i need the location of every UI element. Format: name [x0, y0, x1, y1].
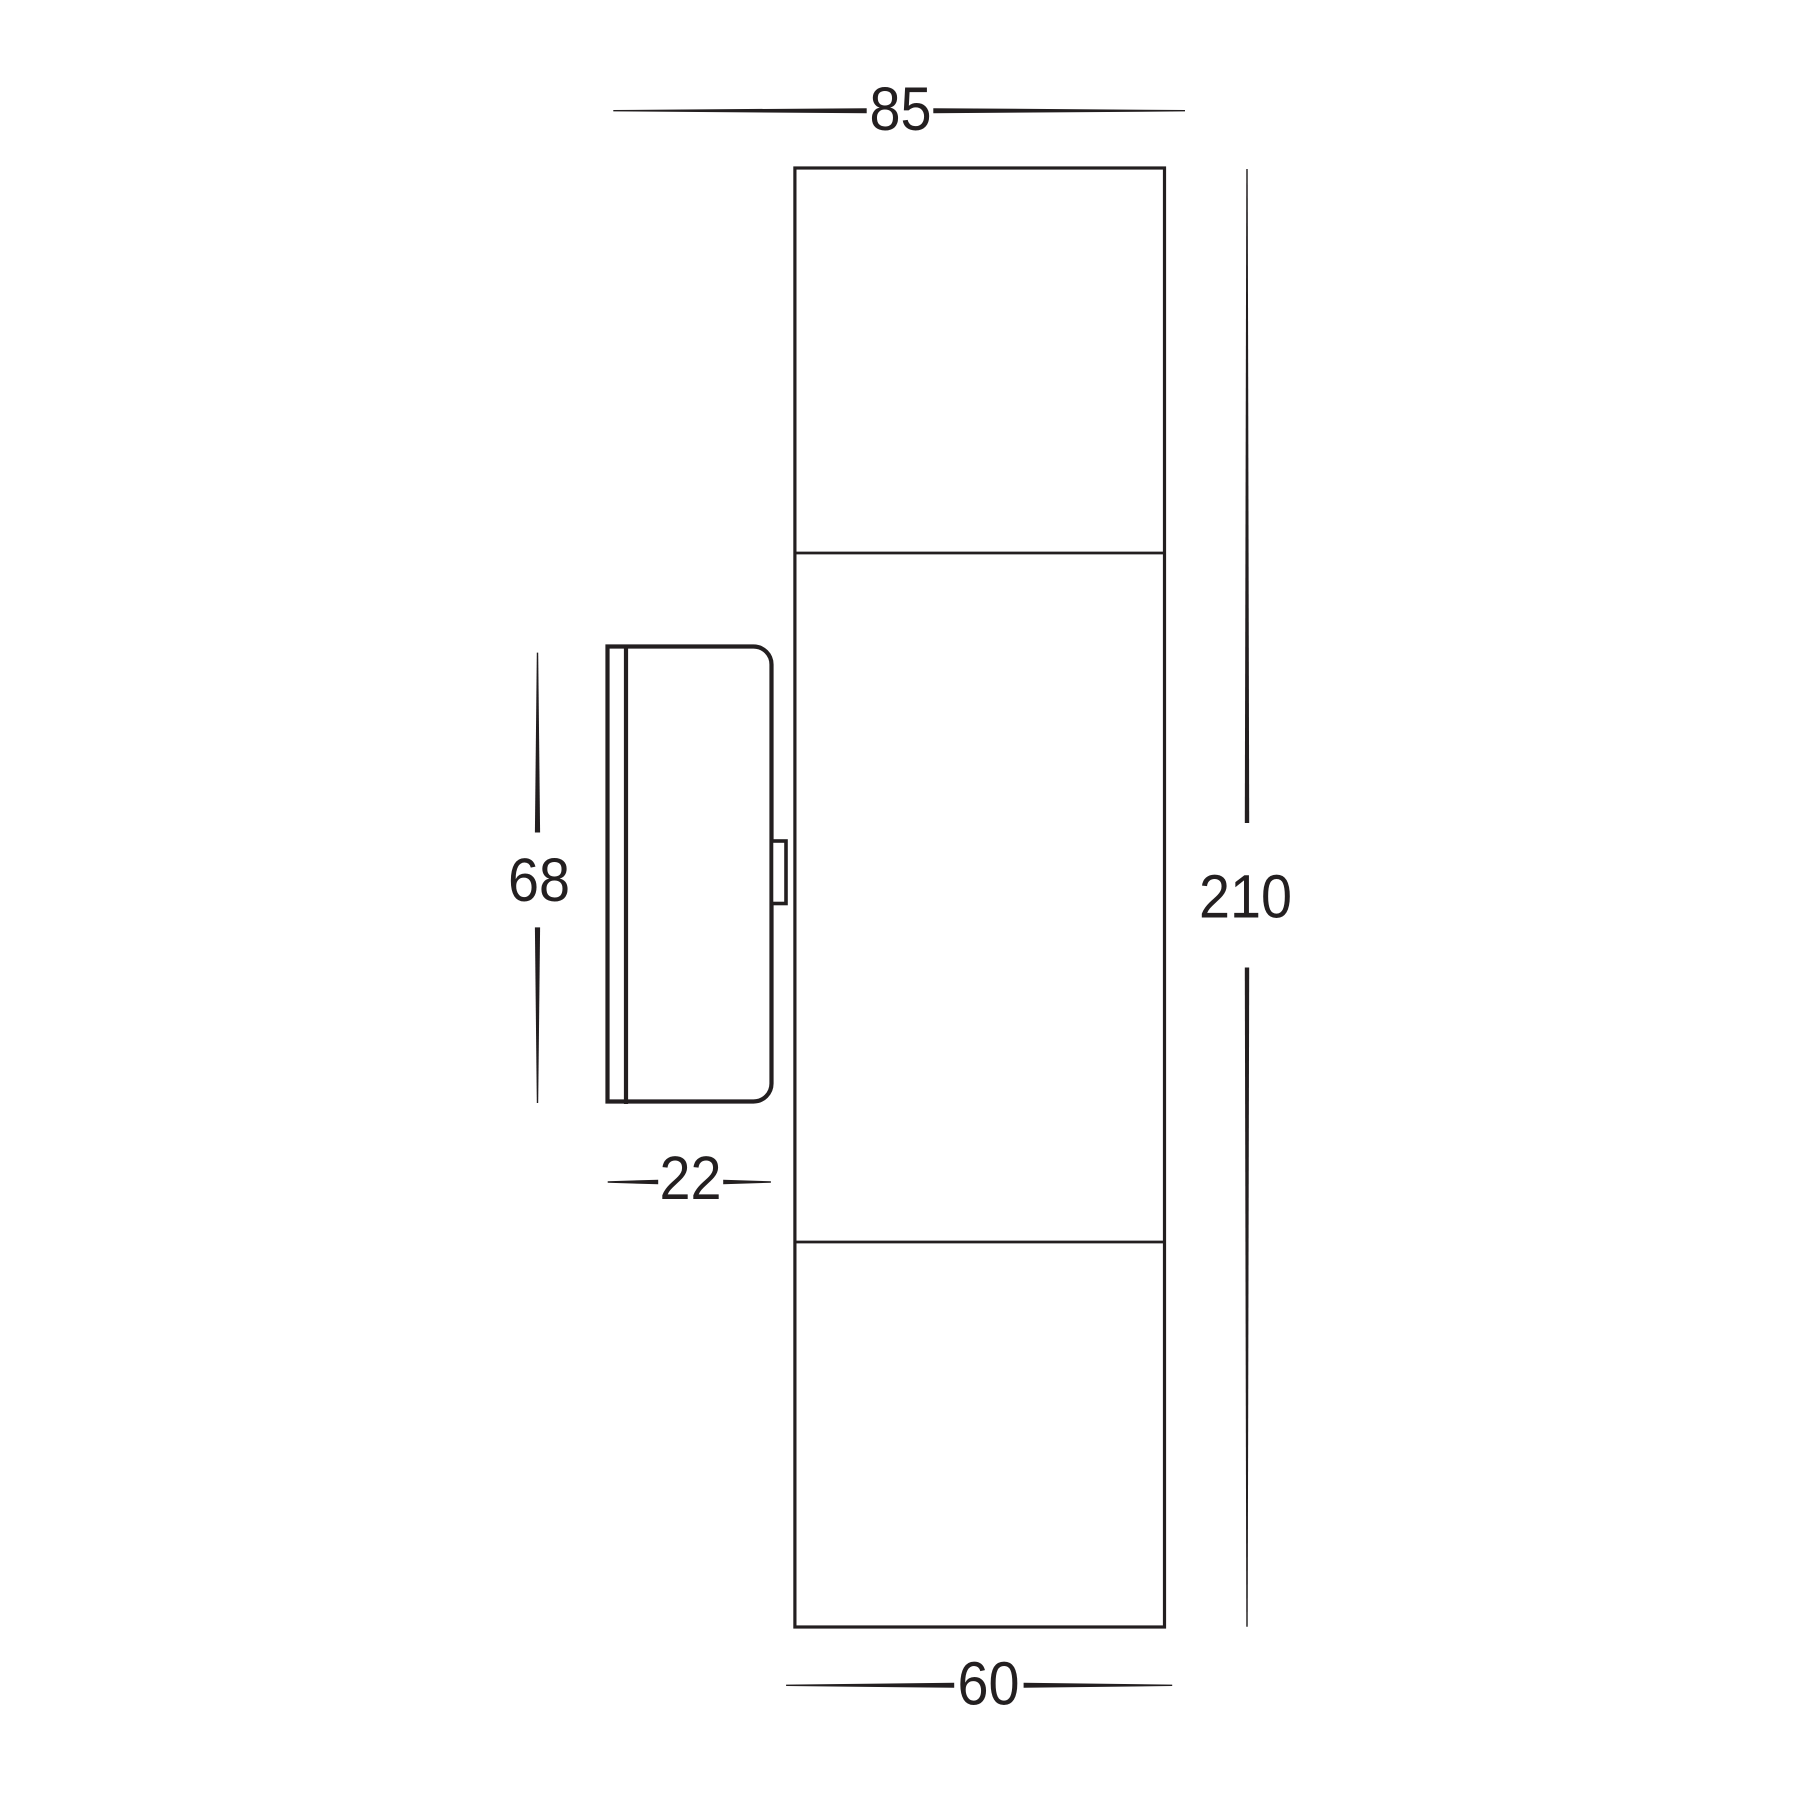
svg-text:60: 60 — [958, 1650, 1020, 1718]
svg-text:68: 68 — [508, 846, 570, 914]
svg-text:22: 22 — [660, 1144, 722, 1212]
svg-text:85: 85 — [870, 75, 932, 143]
svg-text:210: 210 — [1199, 863, 1292, 931]
